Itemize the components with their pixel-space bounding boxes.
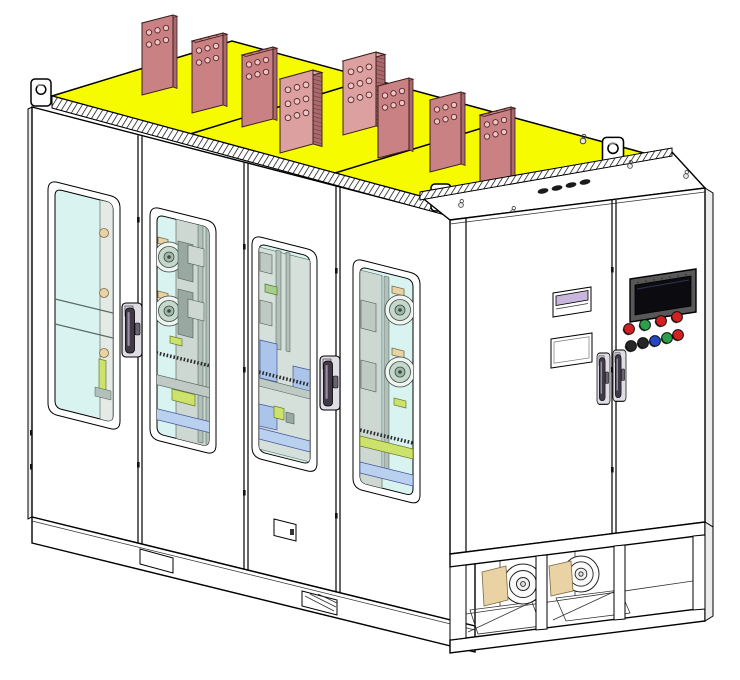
window-machinery-4	[360, 270, 415, 490]
busbar-6	[378, 78, 413, 158]
pushbutton	[672, 312, 683, 323]
frame-post-3	[614, 545, 625, 620]
base-plate-1	[482, 566, 508, 606]
cabinet-drawing	[0, 0, 740, 680]
busbar-7	[430, 92, 465, 172]
frame-post-1	[450, 565, 466, 640]
door-handle-1	[122, 303, 142, 357]
pushbutton	[624, 324, 635, 335]
pushbutton	[673, 330, 684, 341]
pushbutton	[640, 320, 651, 331]
busbar-3	[242, 47, 277, 127]
label-plate	[551, 333, 592, 368]
pushbutton	[626, 341, 637, 352]
cad-scene	[0, 0, 740, 680]
control-cabinet-right-sliver	[705, 188, 713, 527]
control-cabinet-front	[450, 188, 705, 554]
pushbutton	[656, 316, 667, 327]
end-door-handle-1	[597, 353, 610, 404]
frame-post-2	[536, 555, 547, 630]
hmi-screen	[630, 269, 696, 322]
pushbutton	[650, 336, 661, 347]
door-handle-2	[320, 356, 340, 410]
window-machinery-3	[259, 247, 310, 462]
frame-post-4	[693, 535, 705, 610]
pushbutton	[662, 333, 673, 344]
frame-bottom-rail	[450, 608, 705, 653]
busbar-4	[280, 70, 322, 153]
frame-right-sliver	[705, 522, 713, 621]
end-door-handle-2	[613, 350, 626, 401]
busbar-8	[480, 107, 515, 187]
busbar-1	[142, 15, 177, 95]
door-window-2	[150, 208, 216, 453]
door-window-4	[353, 260, 420, 503]
control-cabinet	[420, 148, 713, 554]
lifting-lug-front-left	[31, 79, 51, 106]
busbar-2	[192, 33, 227, 113]
base-plate-2	[549, 561, 573, 596]
door-window-3	[252, 237, 317, 471]
door-window-1	[48, 182, 120, 429]
pushbutton	[638, 338, 649, 349]
